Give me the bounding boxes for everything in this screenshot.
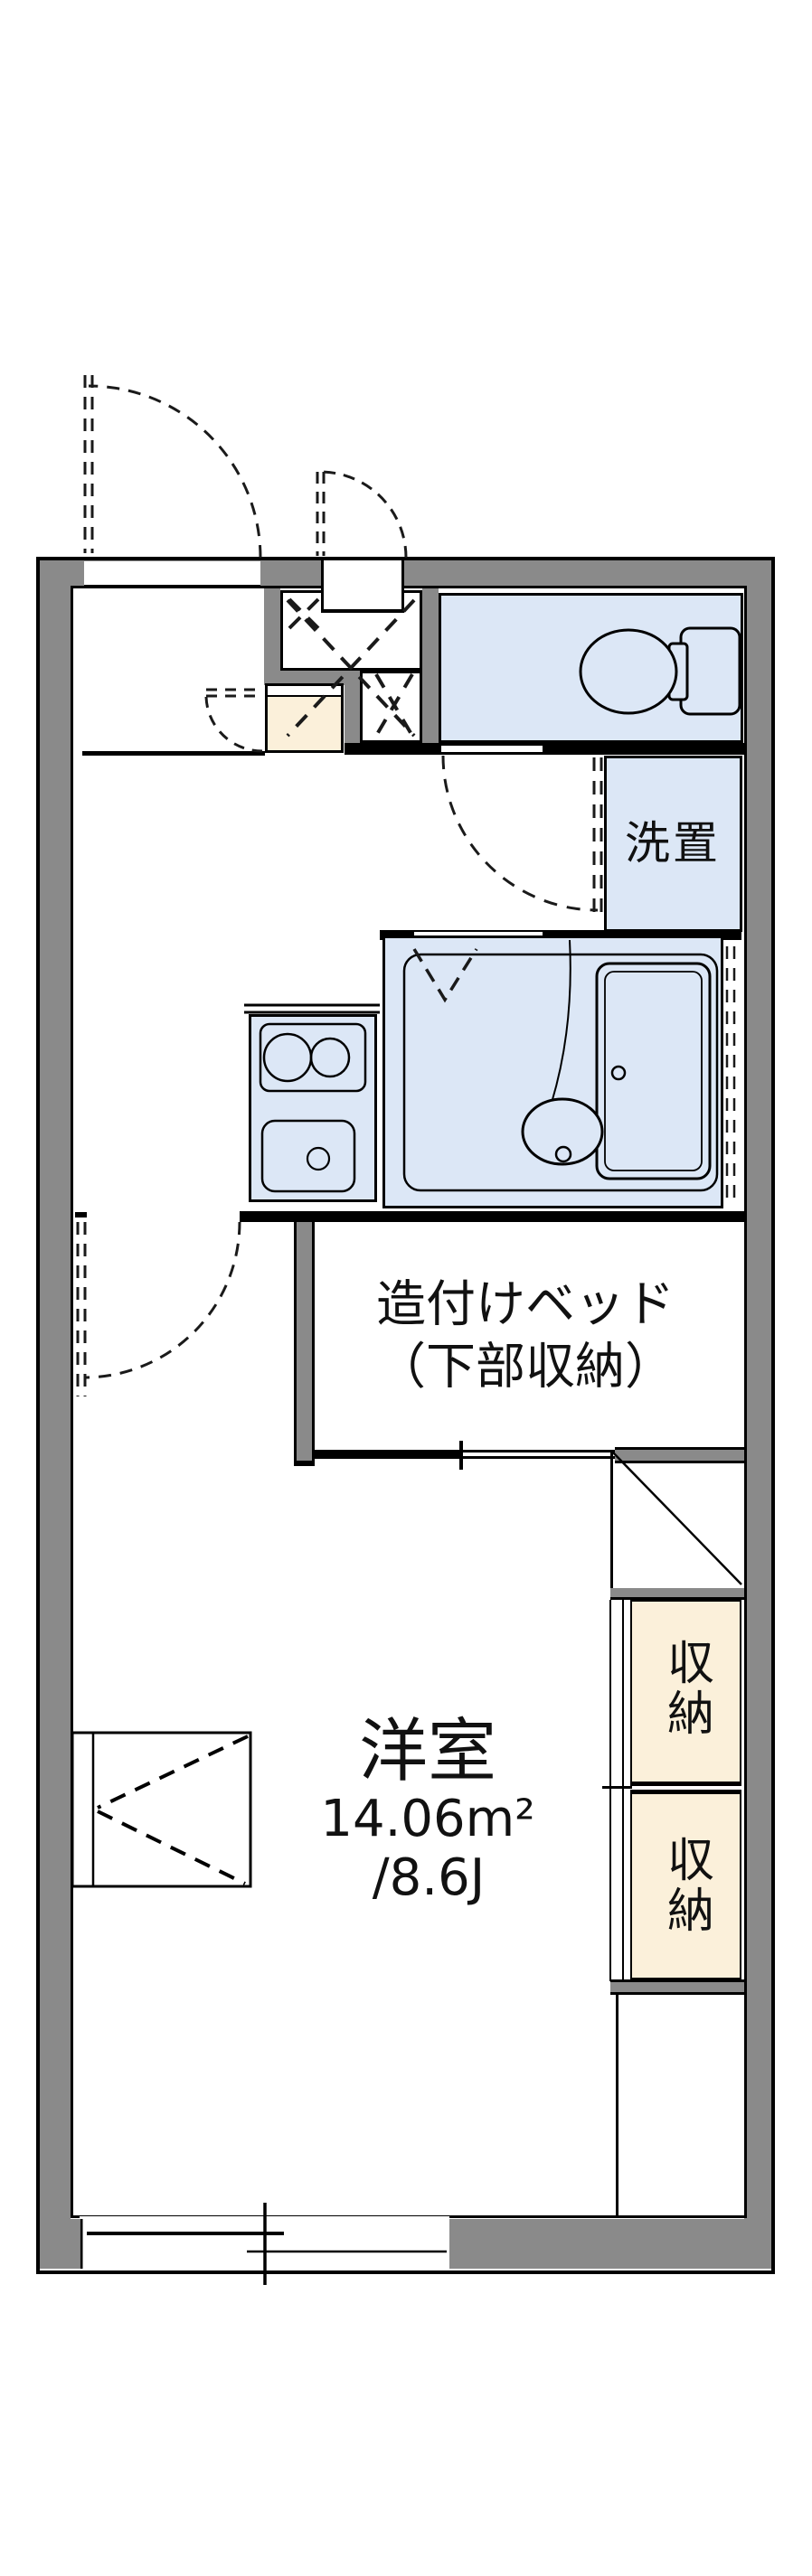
shoe-cabinet-door	[206, 690, 262, 751]
bathtub	[597, 964, 710, 1179]
laundry-label: 洗置	[625, 815, 721, 872]
floor-plan: 洗置 造付けベッド （下部収納） 洋室 14.06m² /8.6J 収納 収納	[0, 0, 812, 2576]
storage-upper-label: 収納	[656, 1638, 715, 1739]
sink-drain	[307, 1148, 329, 1170]
alcove-cross-marks	[288, 599, 414, 736]
room-area-jo-label: /8.6J	[373, 1847, 485, 1910]
bathroom-fixtures	[404, 940, 717, 1190]
counter-box	[72, 1733, 250, 1886]
toilet-tank	[681, 628, 740, 714]
bed-label: 造付けベッド （下部収納）	[376, 1273, 675, 1397]
window-symbol	[81, 2203, 447, 2285]
toilet-fixture	[581, 628, 740, 714]
burner-large	[264, 1034, 311, 1081]
room-name-label: 洋室	[359, 1708, 496, 1794]
entrance-door	[85, 375, 260, 558]
room-area-m2-label: 14.06m²	[320, 1788, 534, 1851]
kitchen-fixtures	[244, 1005, 380, 1191]
bed-label-line1: 造付けベッド	[376, 1273, 675, 1335]
entry-hall-door	[317, 472, 406, 558]
hall-door	[443, 756, 601, 915]
storage-lower-label: 収納	[656, 1835, 715, 1936]
bed-label-line2: （下部収納）	[376, 1335, 675, 1397]
room-door	[78, 1222, 240, 1396]
washbasin	[523, 1099, 602, 1164]
toilet-bowl	[581, 630, 676, 713]
burner-small	[311, 1039, 349, 1076]
fridge-space-diagonal	[613, 1453, 741, 1584]
tub-drain	[612, 1067, 625, 1079]
